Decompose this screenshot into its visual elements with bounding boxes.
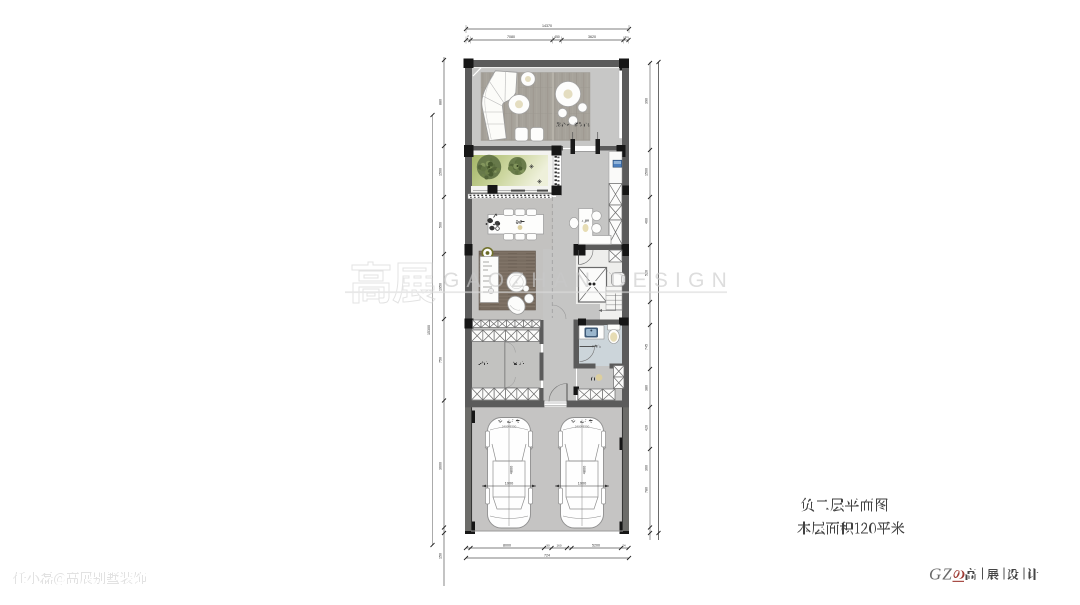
- svg-text:460: 460: [645, 218, 649, 224]
- svg-text:4800: 4800: [510, 466, 514, 474]
- svg-text:2400*5300: 2400*5300: [575, 425, 590, 429]
- svg-text:750: 750: [439, 357, 443, 363]
- svg-text:2400*5300: 2400*5300: [502, 425, 517, 429]
- svg-text:2: 2: [467, 34, 469, 38]
- svg-text:780: 780: [645, 487, 649, 493]
- svg-text:1500: 1500: [645, 168, 649, 176]
- svg-text:1900: 1900: [578, 482, 586, 486]
- svg-text:15300: 15300: [427, 325, 431, 335]
- svg-text:14370: 14370: [542, 24, 552, 28]
- svg-text:150: 150: [439, 553, 443, 559]
- svg-text:3620: 3620: [588, 35, 596, 39]
- svg-text:420: 420: [645, 425, 649, 431]
- svg-text:3600: 3600: [439, 462, 443, 470]
- svg-text:1900: 1900: [505, 482, 513, 486]
- svg-text:880: 880: [439, 99, 443, 105]
- svg-text:1950: 1950: [439, 283, 443, 291]
- svg-text:724: 724: [544, 553, 550, 557]
- svg-text:24: 24: [622, 543, 626, 547]
- svg-text:360: 360: [645, 465, 649, 471]
- svg-text:450: 450: [554, 35, 560, 39]
- svg-text:745: 745: [645, 344, 649, 350]
- svg-text:160: 160: [556, 543, 561, 547]
- svg-text:7080: 7080: [507, 35, 515, 39]
- svg-text:4800: 4800: [583, 466, 587, 474]
- svg-text:390: 390: [645, 98, 649, 104]
- svg-text:GAOZHAN DESIGN: GAOZHAN DESIGN: [443, 269, 734, 292]
- svg-text:GZ: GZ: [929, 565, 953, 584]
- svg-text:8000: 8000: [503, 543, 511, 547]
- svg-text:90: 90: [546, 543, 550, 547]
- svg-text:380: 380: [645, 385, 649, 391]
- svg-text:1500: 1500: [439, 168, 443, 176]
- svg-text:24: 24: [624, 35, 628, 39]
- svg-text:5200: 5200: [592, 543, 600, 547]
- svg-text:500: 500: [439, 222, 443, 228]
